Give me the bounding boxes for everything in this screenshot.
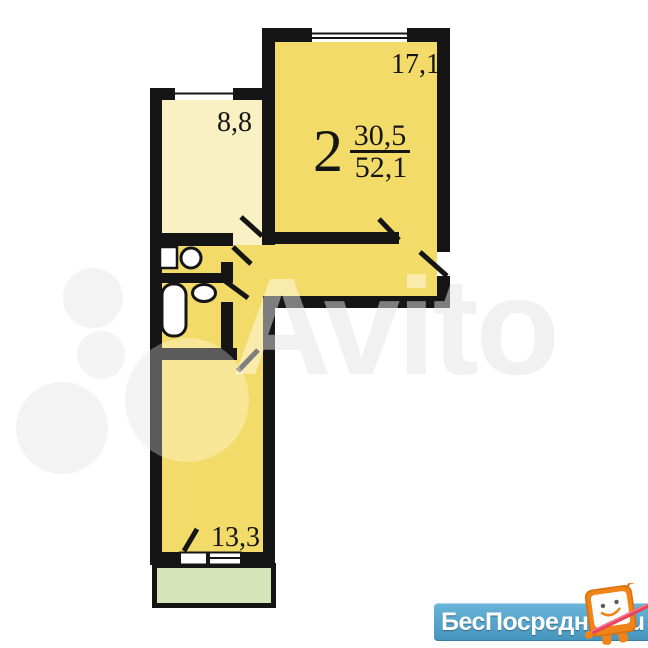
toilet-tank-icon <box>160 247 177 268</box>
total-area-label: 52,1 <box>355 151 408 184</box>
kitchen-area <box>150 88 274 245</box>
sink-icon <box>193 285 216 302</box>
living-area-label: 30,5 <box>354 119 407 152</box>
toilet-bowl-icon <box>181 248 201 268</box>
avito-watermark-over: Avito <box>77 250 557 462</box>
floorplan-image: Avito <box>0 0 648 648</box>
mascot-icon <box>573 583 648 648</box>
kitchen-area-label: 8,8 <box>217 107 252 138</box>
balcony <box>155 566 274 606</box>
living-room-area-label: 17,1 <box>391 49 440 80</box>
bedroom-area-label: 13,3 <box>211 522 260 553</box>
svg-text:Avito: Avito <box>232 250 557 404</box>
apartment-summary: 2 30,5 52,1 <box>313 118 410 184</box>
rooms-count-label: 2 <box>313 118 343 184</box>
kitchen-window <box>175 88 233 100</box>
floorplan-svg: 17,1 8,8 13,3 2 30,5 52,1 Avito <box>0 0 648 648</box>
living-room-window <box>312 28 407 42</box>
balcony-window <box>209 553 241 565</box>
bathtub-icon <box>162 284 186 336</box>
balcony-door-panel <box>180 553 207 565</box>
